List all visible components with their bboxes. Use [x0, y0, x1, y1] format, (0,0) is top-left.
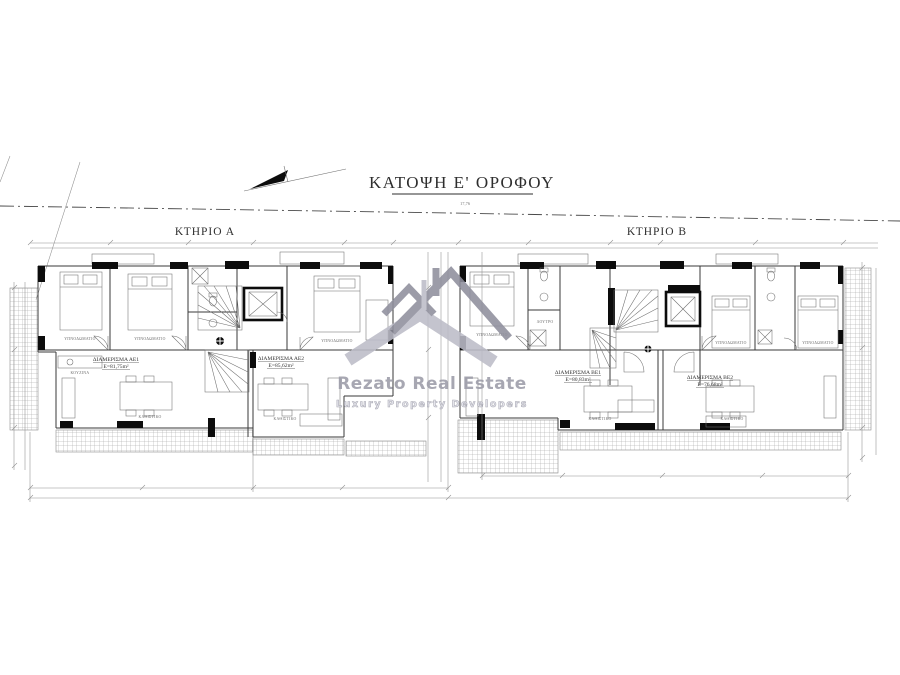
svg-text:ΚΟΥΖΙΝΑ: ΚΟΥΖΙΝΑ [71, 371, 90, 375]
page-title: ΚΑΤΟΨΗ Ε' ΟΡΟΦΟΥ [369, 173, 555, 194]
svg-text:ΔΙΑΜΕΡΙΣΜΑ ΒΕ2: ΔΙΑΜΕΡΙΣΜΑ ΒΕ2 [687, 375, 733, 381]
balcony-b-south [560, 432, 841, 450]
building-a-label: ΚΤΗΡΙΟ Α [175, 226, 235, 238]
balcony-b-east [845, 268, 871, 430]
stairs-a-lower [205, 350, 249, 392]
svg-text:ΥΠΝΟΔΩΜΑΤΙΟ: ΥΠΝΟΔΩΜΑΤΙΟ [802, 341, 833, 345]
svg-text:Ε=76,68m²: Ε=76,68m² [697, 382, 723, 388]
bed-a3 [314, 276, 388, 340]
bathroom-b-right [758, 268, 775, 344]
apartment-label-ae2: ΔΙΑΜΕΡΙΣΜΑ ΑΕ2 Ε=85,62m² [258, 356, 304, 369]
vent-symbol-a [216, 337, 224, 345]
watermark-logo-icon [348, 268, 509, 362]
stairs-b-lower [590, 328, 616, 368]
doors-a [94, 312, 313, 350]
svg-text:ΔΙΑΜΕΡΙΣΜΑ ΒΕ1: ΔΙΑΜΕΡΙΣΜΑ ΒΕ1 [555, 370, 601, 376]
elevator-b [666, 292, 700, 326]
bathroom-b-left [530, 268, 548, 346]
balcony-a-south-1 [56, 430, 253, 452]
boundary-dim-label: 17,76 [460, 201, 471, 207]
bed-a1 [60, 272, 102, 330]
title-text: ΚΑΤΟΨΗ Ε' ΟΡΟΦΟΥ [369, 173, 555, 192]
watermark-brand: Rezato Real Estate [337, 374, 527, 394]
svg-text:ΚΑΘΙΣΤΙΚΟ: ΚΑΘΙΣΤΙΚΟ [720, 417, 743, 421]
terrace-b-southwest [458, 420, 558, 473]
building-b-label: ΚΤΗΡΙΟ Β [627, 226, 687, 238]
svg-text:ΔΙΑΜΕΡΙΣΜΑ ΑΕ1: ΔΙΑΜΕΡΙΣΜΑ ΑΕ1 [93, 357, 139, 363]
svg-text:ΥΠΝΟΔΩΜΑΤΙΟ: ΥΠΝΟΔΩΜΑΤΙΟ [715, 341, 746, 345]
svg-text:ΛΟΥΤΡΟ: ΛΟΥΤΡΟ [537, 320, 554, 324]
svg-text:ΚΑΘΙΣΤΙΚΟ: ΚΑΘΙΣΤΙΚΟ [273, 417, 296, 421]
stairs-a-upper [198, 286, 242, 330]
watermark: Rezato Real Estate Luxury Property Devel… [336, 268, 528, 410]
balcony-a-southeast [346, 441, 426, 456]
watermark-tagline: Luxury Property Developers [336, 399, 528, 410]
north-arrow-icon [244, 166, 346, 191]
elevator-a [244, 288, 282, 320]
balcony-a-south-2 [253, 439, 344, 455]
svg-text:Ε=81,75m²: Ε=81,75m² [103, 364, 129, 370]
building-captions: ΚΤΗΡΙΟ Α ΚΤΗΡΙΟ Β [28, 226, 878, 248]
floor-plan-drawing: ΚΑΤΟΨΗ Ε' ΟΡΟΦΟΥ 17,76 ΚΤΗΡΙΟ Α ΚΤΗΡΙΟ Β [0, 0, 900, 675]
building-b: ΥΠΝΟΔΩΜΑΤΙΟ ΥΠΝΟΔΩΜΑΤΙΟ ΥΠΝΟΔΩΜΑΤΙΟ ΚΑΘΙ… [458, 254, 871, 473]
living-a2 [258, 378, 342, 426]
floor-plan-page: ΚΑΤΟΨΗ Ε' ΟΡΟΦΟΥ 17,76 ΚΤΗΡΙΟ Α ΚΤΗΡΙΟ Β [0, 0, 900, 675]
svg-text:Ε=85,62m²: Ε=85,62m² [268, 363, 294, 369]
stairs-b-upper [614, 290, 658, 332]
vent-symbol-b [645, 346, 652, 353]
svg-text:ΚΑΘΙΣΤΙΚΟ: ΚΑΘΙΣΤΙΚΟ [138, 415, 161, 419]
apartment-label-be1: ΔΙΑΜΕΡΙΣΜΑ ΒΕ1 Ε=80,83m² [555, 370, 601, 383]
svg-text:ΥΠΝΟΔΩΜΑΤΙΟ: ΥΠΝΟΔΩΜΑΤΙΟ [64, 337, 95, 341]
svg-text:ΚΑΘΙΣΤΙΚΟ: ΚΑΘΙΣΤΙΚΟ [588, 417, 611, 421]
svg-text:ΥΠΝΟΔΩΜΑΤΙΟ: ΥΠΝΟΔΩΜΑΤΙΟ [321, 339, 352, 343]
svg-text:ΥΠΝΟΔΩΜΑΤΙΟ: ΥΠΝΟΔΩΜΑΤΙΟ [134, 337, 165, 341]
svg-text:ΔΙΑΜΕΡΙΣΜΑ ΑΕ2: ΔΙΑΜΕΡΙΣΜΑ ΑΕ2 [258, 356, 304, 362]
bed-a2 [128, 274, 172, 330]
corridor-doors-b [624, 352, 694, 372]
svg-text:Ε=80,83m²: Ε=80,83m² [565, 377, 591, 383]
